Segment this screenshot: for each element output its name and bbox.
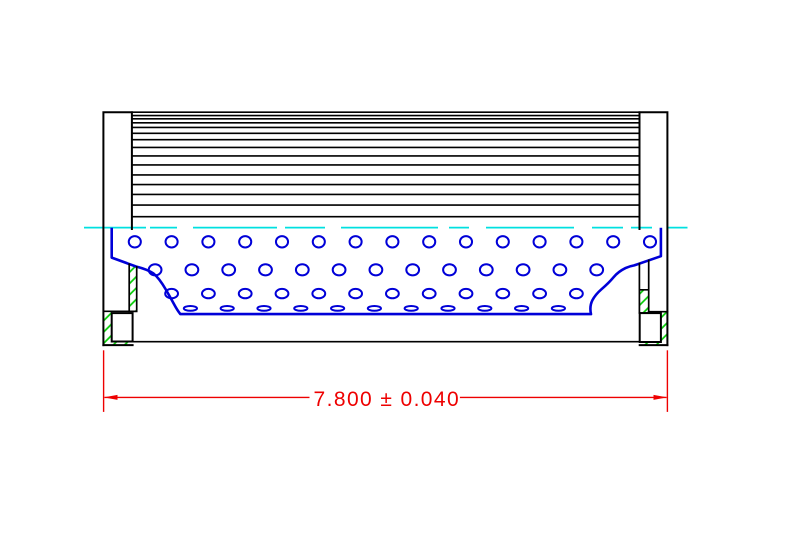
- svg-text:7.800 ± 0.040: 7.800 ± 0.040: [314, 388, 461, 411]
